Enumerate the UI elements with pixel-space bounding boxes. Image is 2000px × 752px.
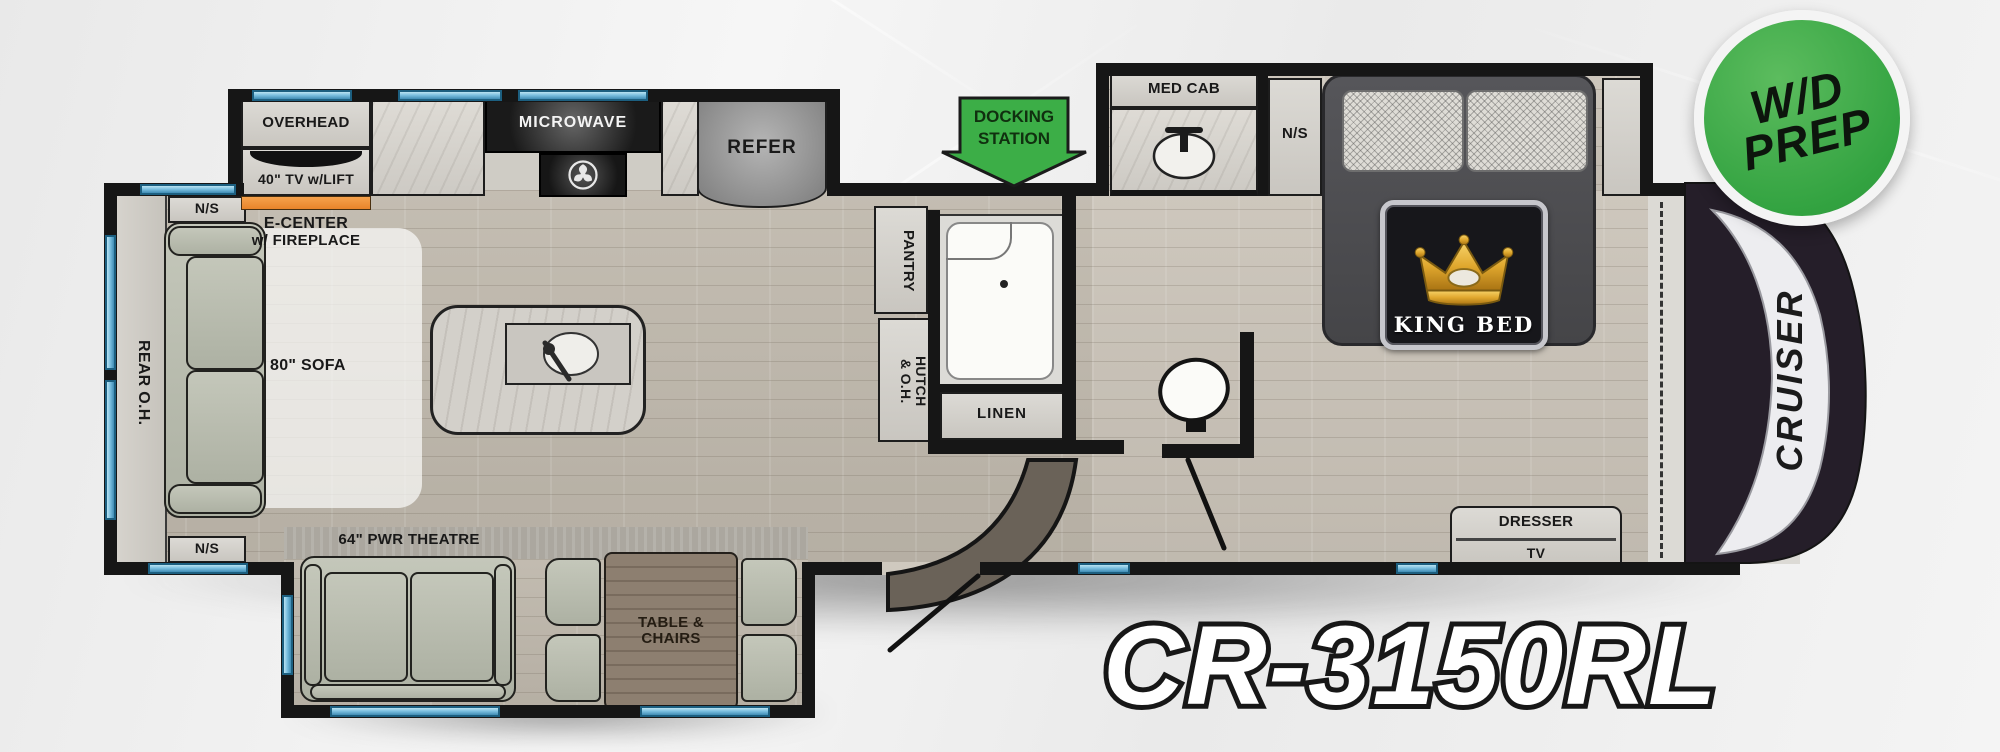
wall (1258, 70, 1268, 196)
floorplan-canvas: REAR O.H. N/S 80" SOFA N/S OVERHEAD 40" … (0, 0, 2000, 752)
bed-pillow (1466, 90, 1588, 172)
wall (228, 89, 241, 196)
window (1078, 563, 1130, 574)
wd-prep-badge: W/D PREP (1694, 10, 1910, 226)
nightstand-top-label: N/S (168, 201, 246, 216)
wall (1096, 63, 1653, 76)
sink-icon (505, 323, 631, 385)
hutch-label-line2: & O.H. (898, 326, 913, 436)
dresser-tv-label: TV (1450, 546, 1622, 561)
steps-to-bedroom (888, 460, 1076, 610)
nightstand-bottom-label: N/S (168, 541, 246, 556)
bath-sink-icon (1110, 108, 1258, 196)
wall (827, 89, 840, 196)
vent-fan-icon (565, 157, 601, 193)
rear-overhead-label: REAR O.H. (124, 318, 152, 448)
docking-label-line1: DOCKING (974, 107, 1054, 126)
med-cab-label: MED CAB (1110, 81, 1258, 97)
dinette-table-label-line2: CHAIRS (641, 631, 700, 647)
sofa-armrest-bottom (168, 484, 262, 514)
sofa-cushion (186, 370, 264, 484)
docking-station-arrow: DOCKING STATION (938, 94, 1090, 190)
window (518, 90, 648, 101)
shower-door (946, 222, 1012, 260)
wall (1062, 190, 1076, 452)
wall (1096, 63, 1109, 196)
window (640, 706, 770, 717)
hutch-label-line1: HUTCH (913, 326, 928, 436)
ecenter-fireplace-strip (241, 196, 371, 210)
window (105, 380, 116, 520)
window (282, 595, 293, 675)
king-bed-badge: KING BED (1380, 200, 1548, 350)
window (398, 90, 502, 101)
linen-label: LINEN (940, 406, 1064, 422)
pantry-label: PANTRY (886, 214, 916, 308)
bed-pillow (1342, 90, 1464, 172)
hutch-label: HUTCH & O.H. (882, 326, 928, 436)
dinette-chair (545, 634, 601, 702)
model-code-text: CR-3150RL (1103, 603, 1719, 728)
shower-door-handle (1000, 280, 1008, 288)
tv-lift-label: 40" TV w/LIFT (239, 172, 373, 187)
dinette-chair (741, 634, 797, 702)
window (330, 706, 500, 717)
wall (802, 562, 815, 718)
window (252, 90, 352, 101)
wall (802, 562, 882, 575)
theatre-seat (410, 572, 494, 682)
ecenter-label-line1: E-CENTER (218, 215, 394, 232)
theatre-armrest-left (304, 564, 322, 686)
overhead-label: OVERHEAD (241, 115, 371, 131)
microwave-label: MICROWAVE (485, 114, 661, 131)
theatre-seat (324, 572, 408, 682)
king-bed-label: KING BED (1394, 312, 1534, 337)
crown-icon (1412, 232, 1516, 310)
theatre-front-edge (310, 684, 506, 700)
docking-label-line2: STATION (978, 129, 1050, 148)
wall (928, 210, 940, 454)
bedroom-nightstand-left-label: N/S (1268, 126, 1322, 142)
refrigerator-label: REFER (697, 138, 827, 159)
theatre-label: 64" PWR THEATRE (296, 532, 522, 548)
model-code: CR-3150RL (1085, 578, 1745, 750)
window (148, 563, 248, 574)
theatre-armrest-right (494, 564, 512, 686)
cooktop (539, 153, 627, 197)
window (105, 235, 116, 370)
toilet-door-swing (1188, 460, 1224, 548)
dresser-divider (1456, 538, 1616, 541)
cruiser-side-label: CRUISER (1769, 288, 1810, 471)
dinette-table: TABLE & CHAIRS (604, 552, 738, 710)
dinette-table-label-line1: TABLE & (638, 615, 704, 631)
window (1396, 563, 1438, 574)
ecenter-label-line2: w/ FIREPLACE (218, 233, 394, 249)
window (140, 184, 236, 195)
kitchen-counter (661, 100, 699, 196)
dinette-chair (741, 558, 797, 626)
kitchen-counter (371, 100, 485, 196)
sofa-label: 80" SOFA (270, 357, 380, 374)
dresser-label: DRESSER (1450, 514, 1622, 530)
dinette-chair (545, 558, 601, 626)
sofa-cushion (186, 256, 264, 370)
